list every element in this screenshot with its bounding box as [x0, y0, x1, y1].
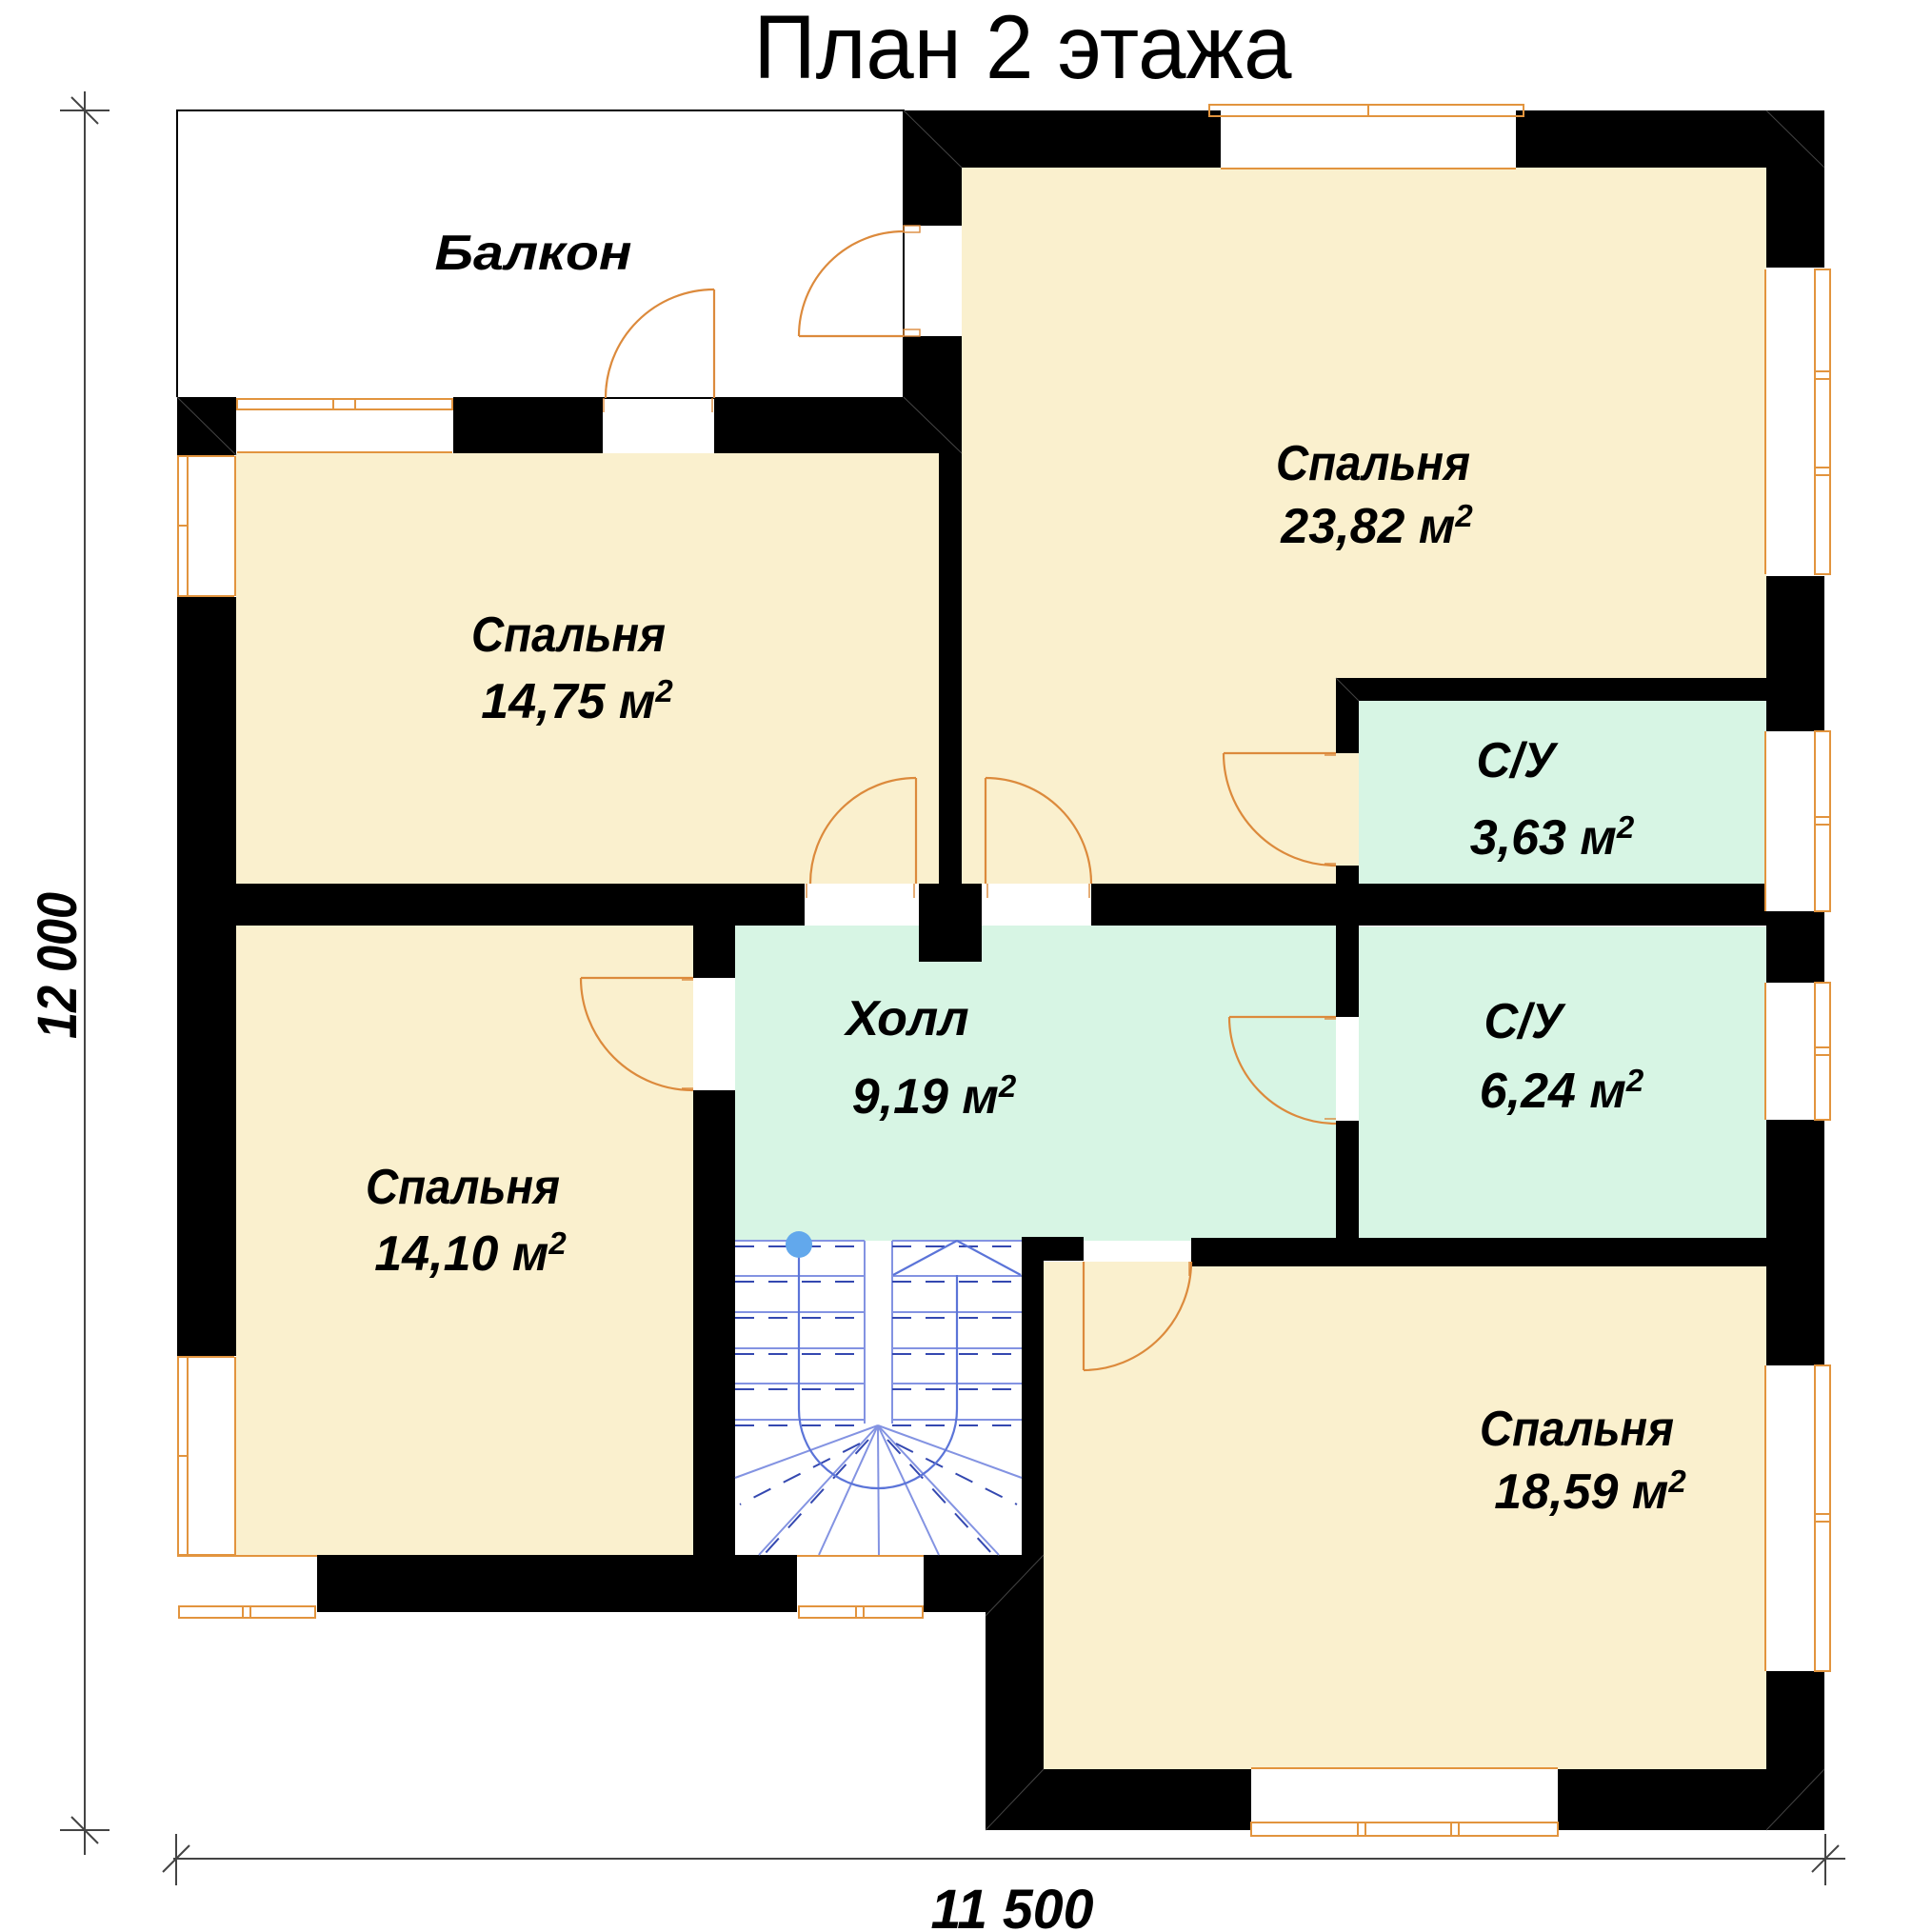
svg-text:14,10 м2: 14,10 м2: [374, 1225, 567, 1282]
svg-text:11 500: 11 500: [931, 1879, 1094, 1932]
svg-text:12 000: 12 000: [27, 892, 89, 1039]
svg-text:9,19 м2: 9,19 м2: [852, 1068, 1017, 1125]
svg-text:Спальня: Спальня: [1480, 1402, 1674, 1457]
svg-text:23,82 м2: 23,82 м2: [1280, 498, 1473, 554]
svg-text:Холл: Холл: [843, 991, 968, 1046]
svg-text:С/У: С/У: [1477, 733, 1560, 788]
svg-text:Спальня: Спальня: [366, 1160, 560, 1215]
svg-text:План 2 этажа: План 2 этажа: [754, 0, 1292, 98]
svg-text:6,24 м2: 6,24 м2: [1480, 1063, 1644, 1119]
svg-text:Балкон: Балкон: [435, 226, 632, 281]
svg-text:18,59 м2: 18,59 м2: [1494, 1464, 1686, 1520]
svg-text:Спальня: Спальня: [471, 607, 666, 663]
svg-text:С/У: С/У: [1484, 994, 1567, 1049]
svg-text:Спальня: Спальня: [1276, 436, 1470, 491]
svg-text:3,63 м2: 3,63 м2: [1470, 809, 1635, 866]
svg-text:14,75 м2: 14,75 м2: [481, 673, 673, 729]
